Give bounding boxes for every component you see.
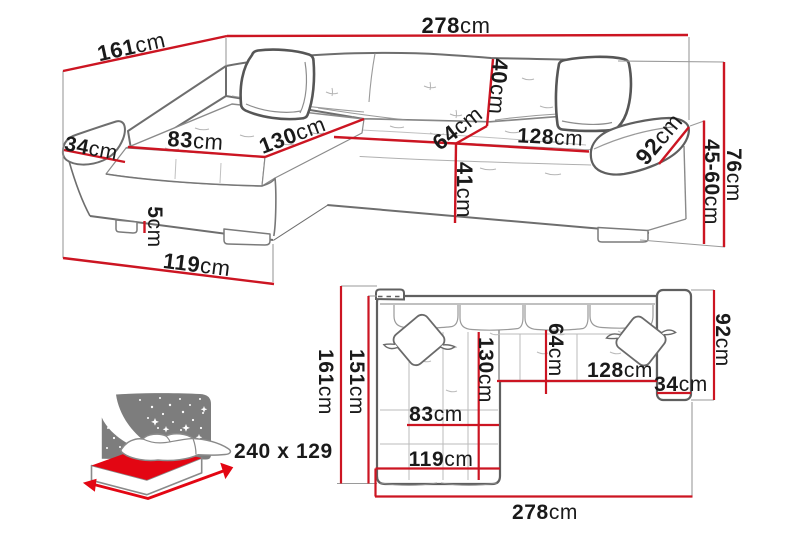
svg-text:240 x 129: 240 x 129 [234, 440, 333, 463]
svg-text:83cm: 83cm [167, 126, 225, 155]
svg-text:5cm: 5cm [143, 206, 166, 247]
svg-text:45-60cm: 45-60cm [700, 139, 723, 225]
svg-text:83cm: 83cm [409, 403, 463, 426]
svg-text:40cm: 40cm [484, 58, 513, 116]
svg-text:41cm: 41cm [452, 162, 477, 218]
svg-text:278cm: 278cm [421, 13, 490, 38]
svg-text:151cm: 151cm [345, 349, 368, 415]
svg-text:128cm: 128cm [517, 124, 584, 150]
svg-text:119cm: 119cm [409, 448, 474, 471]
svg-text:130cm: 130cm [474, 337, 497, 403]
svg-text:76cm: 76cm [722, 148, 745, 202]
svg-text:161cm: 161cm [314, 349, 337, 415]
svg-text:128cm: 128cm [587, 359, 653, 382]
svg-text:92cm: 92cm [711, 313, 734, 367]
svg-text:64cm: 64cm [544, 323, 567, 377]
svg-text:278cm: 278cm [512, 501, 578, 524]
svg-text:34cm: 34cm [654, 373, 708, 396]
